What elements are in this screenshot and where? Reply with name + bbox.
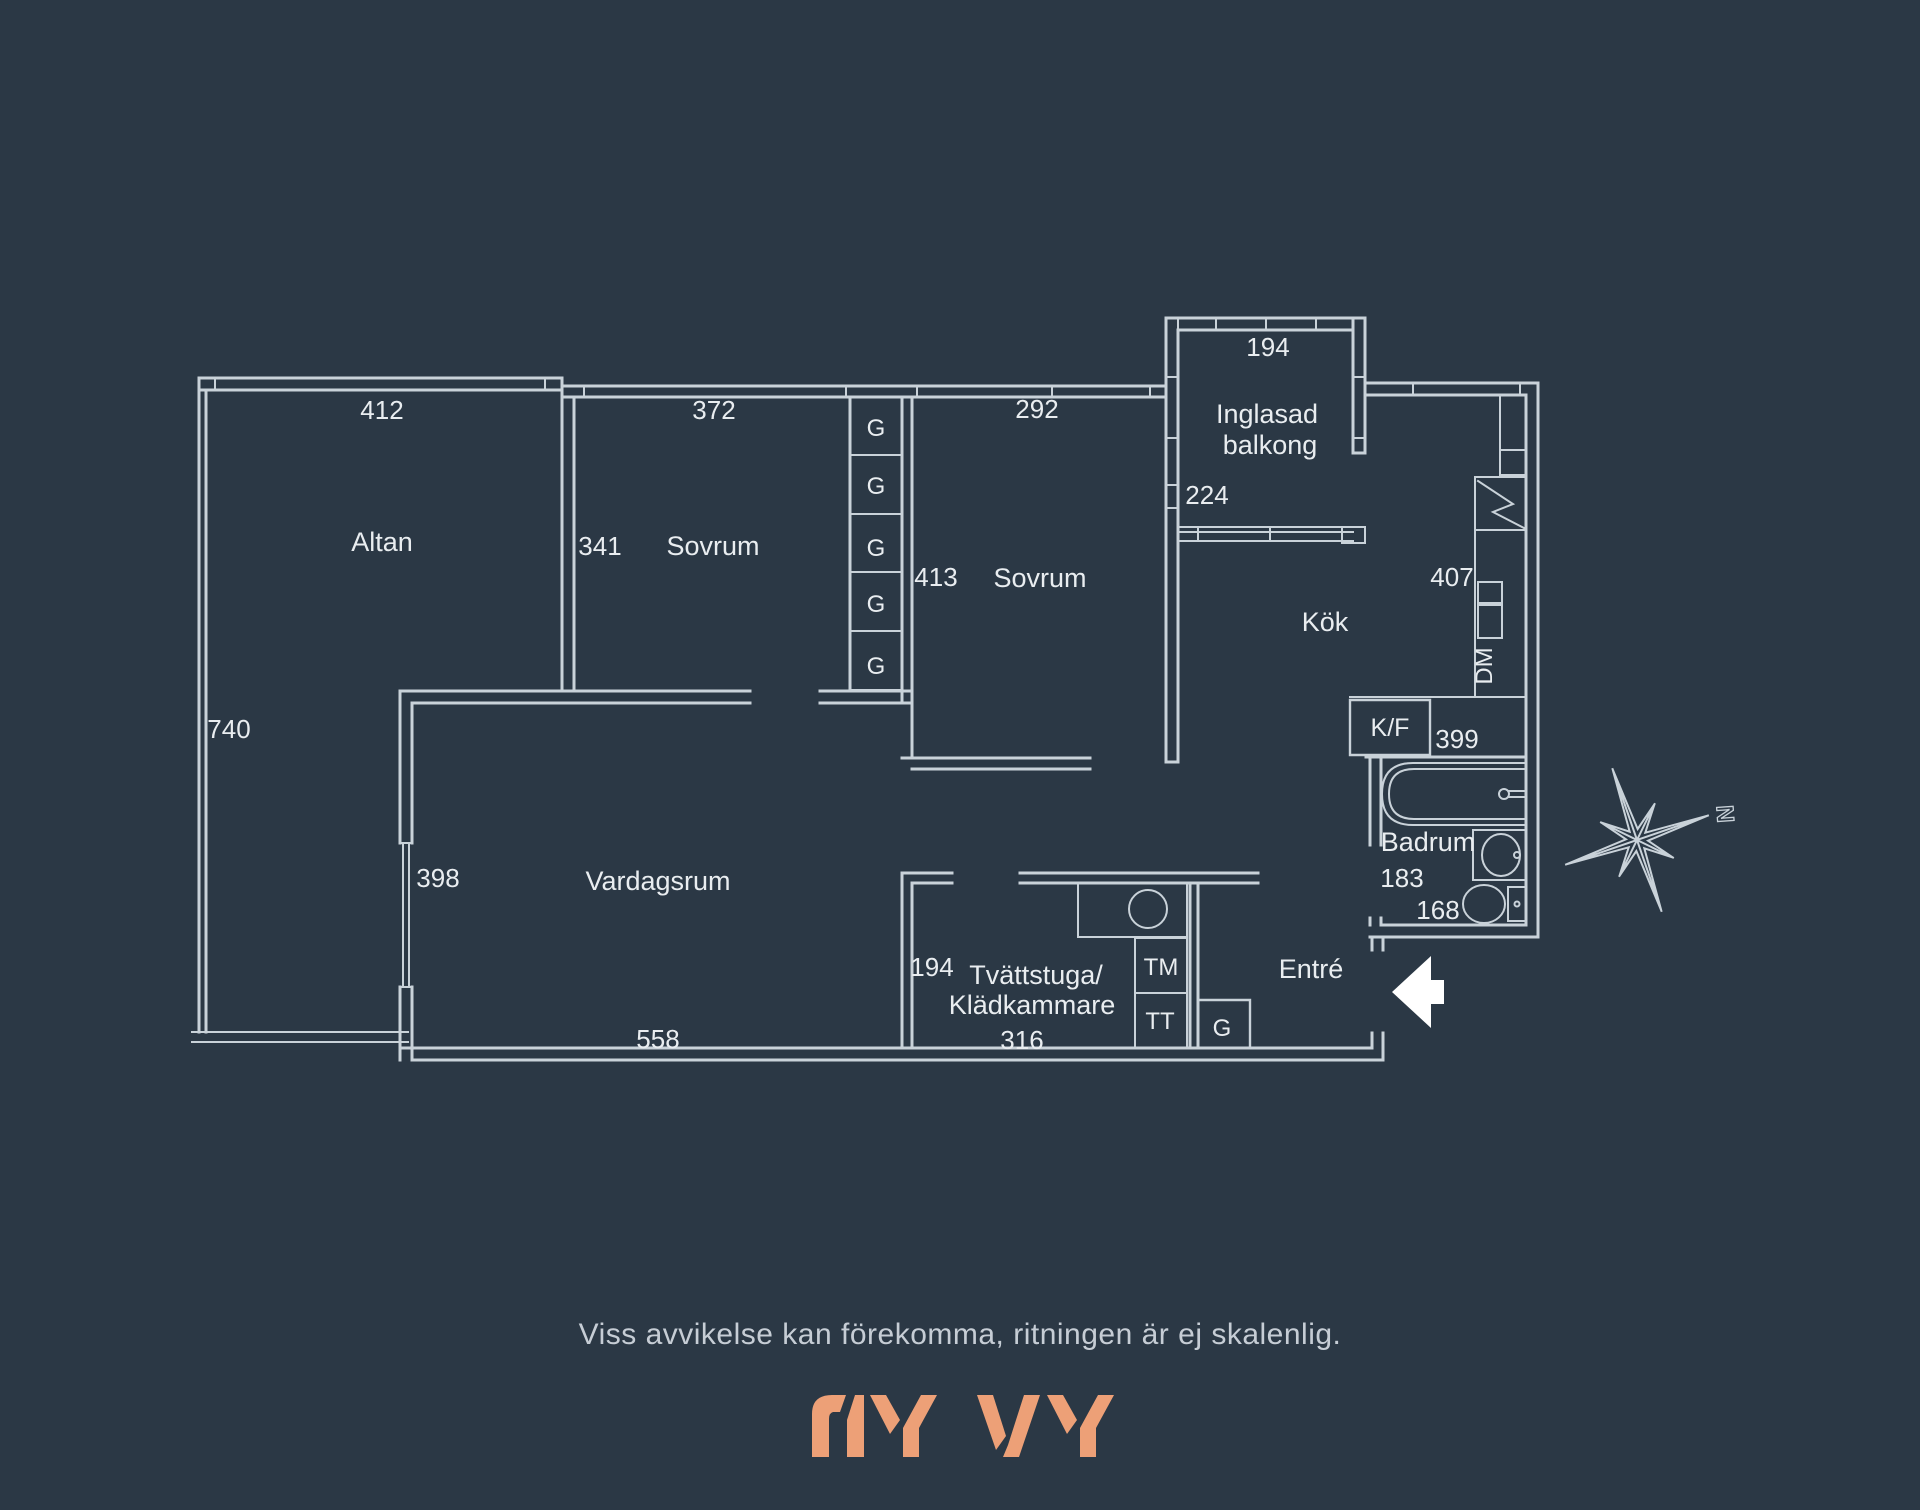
- washbasin-icon: [1473, 830, 1526, 880]
- logo-nyvy: [812, 1395, 1114, 1457]
- room-label-altan: Altan: [351, 527, 413, 557]
- dishwasher-label: DM: [1471, 647, 1498, 684]
- room-label-balkong-line1: Inglasad: [1216, 399, 1318, 429]
- fridge-freezer-label: K/F: [1371, 714, 1410, 742]
- closet-label-3: G: [867, 535, 886, 562]
- closet-label-entre: G: [1213, 1015, 1232, 1042]
- floor-plan: N 412 Altan 740 372 341 Sovrum 292 413 S…: [0, 0, 1920, 1510]
- closet-label-5: G: [867, 653, 886, 680]
- dim-altan-height: 740: [207, 714, 250, 744]
- room-label-badrum: Badrum: [1381, 827, 1476, 857]
- dim-sovrum2-width: 292: [1015, 394, 1058, 424]
- closet-label-1: G: [867, 415, 886, 442]
- closet-label-2: G: [867, 473, 886, 500]
- dim-balkong-width: 194: [1246, 332, 1289, 362]
- dim-sovrum2-height: 413: [914, 562, 957, 592]
- compass-icon: N: [1542, 734, 1762, 935]
- dim-kok-width: 399: [1435, 724, 1478, 754]
- dryer-label: TT: [1145, 1008, 1175, 1035]
- room-label-entre: Entré: [1279, 954, 1344, 984]
- room-label-tvattstuga-line2: Klädkammare: [949, 990, 1116, 1020]
- disclaimer-text: Viss avvikelse kan förekomma, ritningen …: [579, 1318, 1342, 1351]
- room-label-kok: Kök: [1302, 607, 1349, 637]
- dim-badrum-a: 183: [1380, 863, 1423, 893]
- room-label-vardagsrum: Vardagsrum: [585, 866, 730, 896]
- dim-tvattstuga-width: 316: [1000, 1025, 1043, 1055]
- entrance-arrow-icon: [1392, 956, 1444, 1028]
- dim-badrum-b: 168: [1416, 895, 1459, 925]
- room-label-sovrum2: Sovrum: [993, 563, 1086, 593]
- washing-machine-label: TM: [1144, 954, 1179, 981]
- compass-north-label: N: [1710, 804, 1738, 823]
- dim-sovrum1-height: 341: [578, 531, 621, 561]
- dim-sovrum1-width: 372: [692, 395, 735, 425]
- dim-balkong-height: 224: [1185, 480, 1228, 510]
- closet-label-4: G: [867, 591, 886, 618]
- dim-altan-width: 412: [360, 395, 403, 425]
- dim-vardagsrum-width: 558: [636, 1024, 679, 1054]
- dim-tvattstuga-height: 194: [910, 952, 953, 982]
- room-label-sovrum1: Sovrum: [666, 531, 759, 561]
- windows: [192, 318, 1520, 1042]
- floorplan-page: N 412 Altan 740 372 341 Sovrum 292 413 S…: [0, 0, 1920, 1510]
- dim-vardagsrum-door: 398: [416, 863, 459, 893]
- laundry-sink-icon: [1129, 890, 1167, 928]
- dim-kok-height: 407: [1430, 562, 1473, 592]
- bathtub-icon: [1382, 763, 1526, 825]
- room-label-tvattstuga-line1: Tvättstuga/: [969, 960, 1103, 990]
- room-label-balkong-line2: balkong: [1223, 430, 1318, 460]
- toilet-icon: [1463, 885, 1526, 923]
